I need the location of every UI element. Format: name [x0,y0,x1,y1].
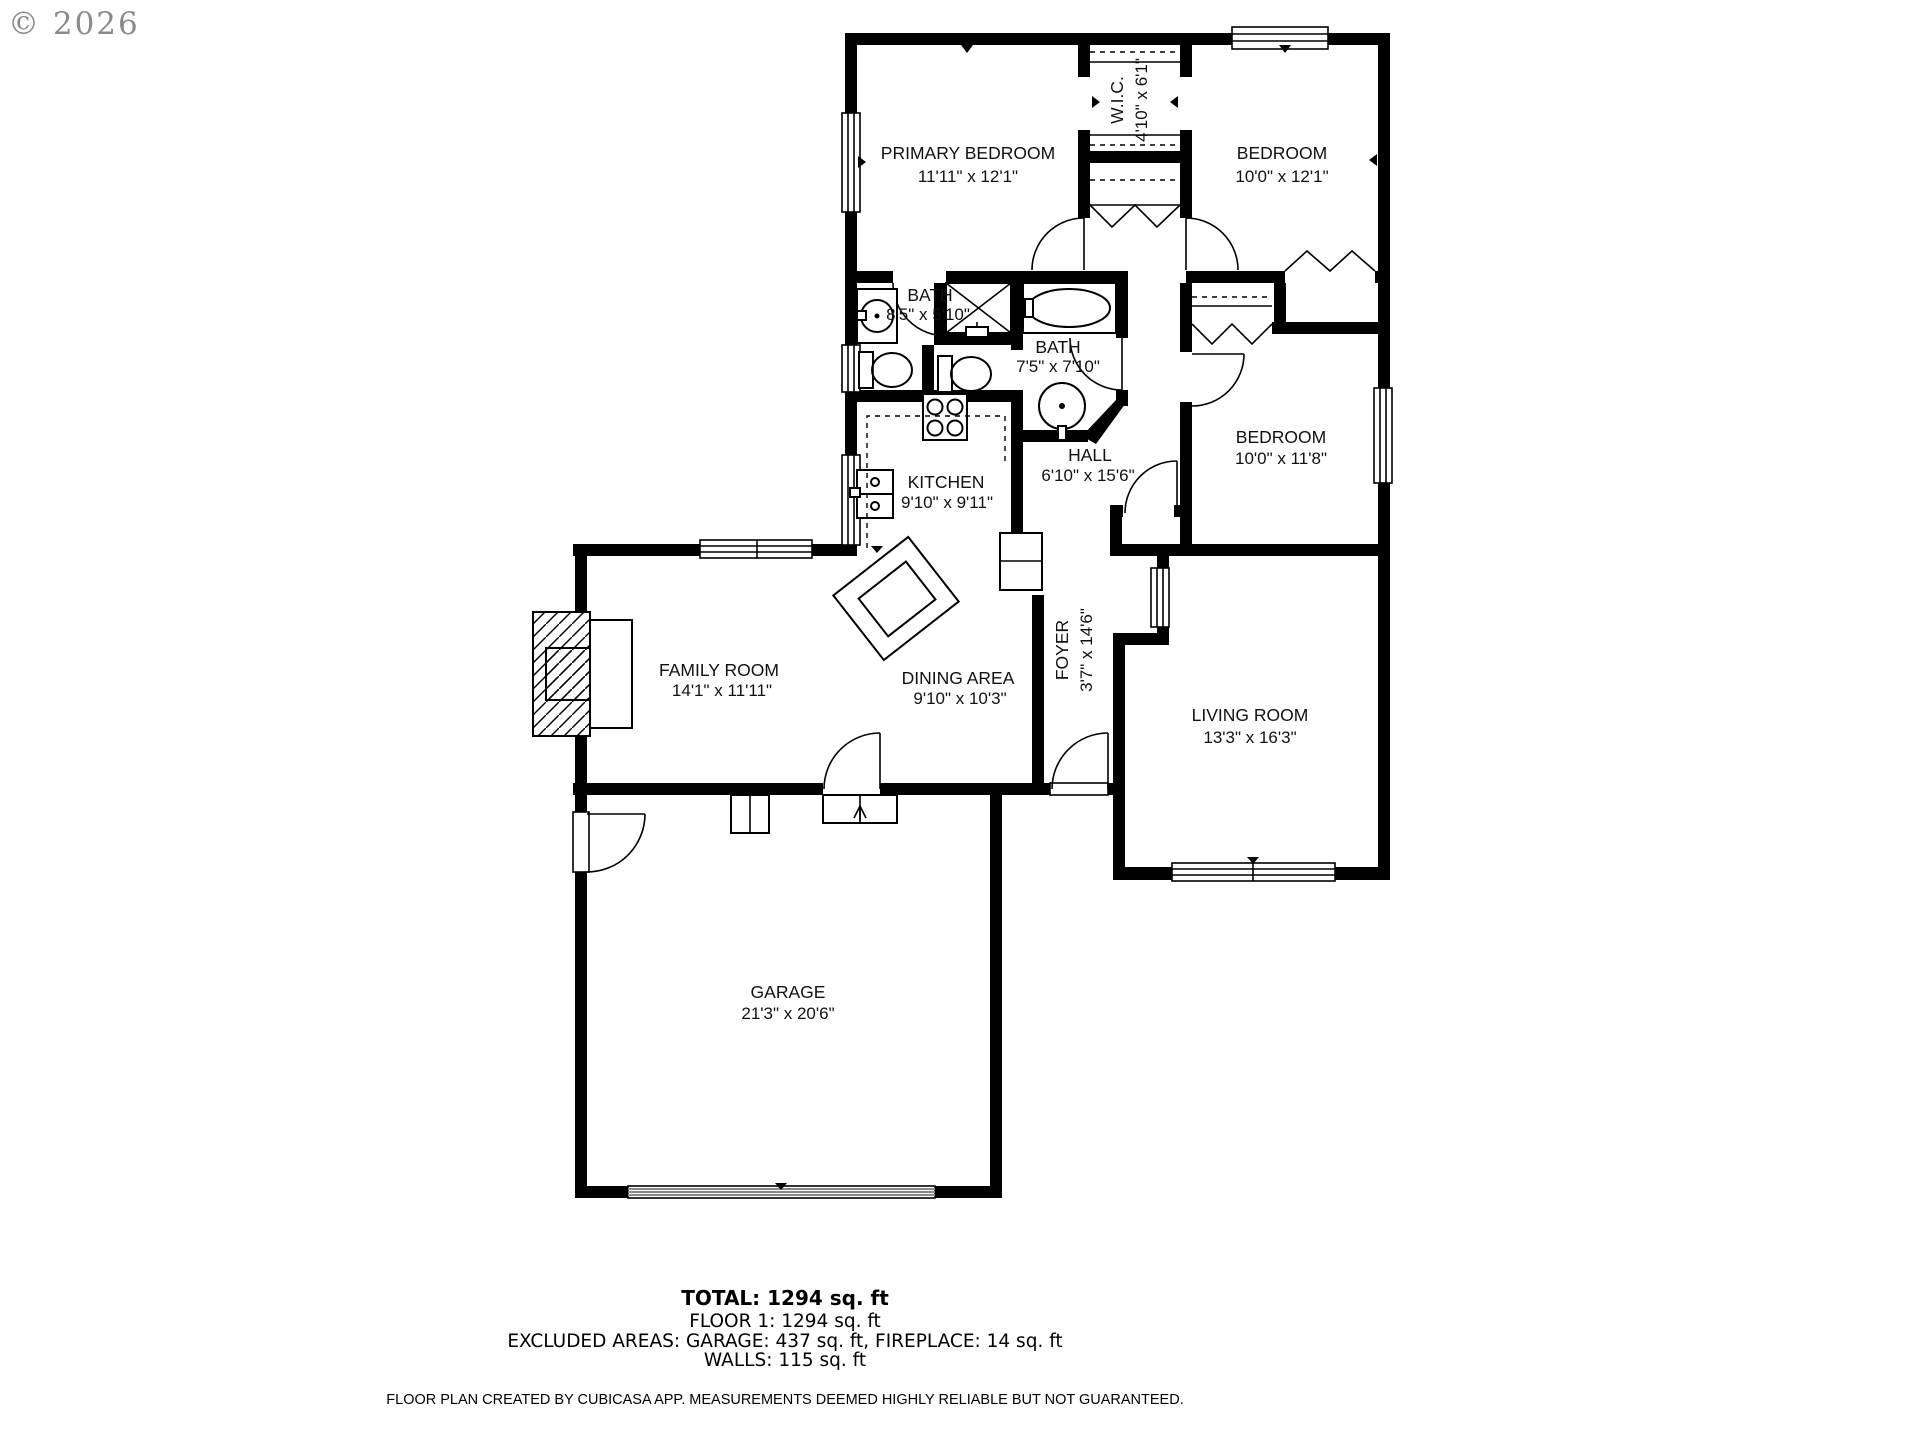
walls [573,33,1390,1198]
room-dims-foyer: 3'7" x 14'6" [1077,608,1096,692]
room-dims-bedroom1: 10'0" x 12'1" [1235,167,1328,186]
room-dims-living-room: 13'3" x 16'3" [1203,728,1296,747]
room-label-garage: GARAGE [751,982,826,1002]
summary-floor1: FLOOR 1: 1294 sq. ft [689,1311,881,1332]
room-label-foyer: FOYER [1052,620,1072,680]
kitchen-sink [850,470,893,518]
room-label-dining-area: DINING AREA [902,668,1015,688]
room-dims-garage: 21'3" x 20'6" [741,1004,834,1023]
window [1151,568,1169,627]
interior-door-primary-bedroom [1032,218,1084,270]
bath2-toilet [938,356,991,392]
bedroom2-closet [1192,297,1272,344]
room-dims-dining-area: 9'10" x 10'3" [913,689,1006,708]
room-label-bedroom1: BEDROOM [1237,143,1327,163]
water-heater [731,795,769,833]
room-label-bedroom2: BEDROOM [1236,427,1326,447]
floor-plan-page: { "watermark": "© 2026", "rooms": { "pri… [0,0,1920,1440]
window [842,113,860,212]
front-door [1050,733,1108,795]
room-dims-primary-bedroom: 11'11" x 12'1" [918,167,1018,186]
fixtures [533,283,1116,1198]
linen-closet-bifold-doors [1090,180,1180,227]
room-label-wic: W.I.C. [1107,76,1127,124]
interior-door-bedroom2 [1192,354,1244,406]
stove [923,394,967,440]
room-dims-bath2: 7'5" x 7'10" [1016,357,1100,376]
room-label-bath1: BATH [907,285,952,305]
bedroom1-closet-bifold-doors [1285,251,1375,271]
room-dims-bedroom2: 10'0" x 11'8" [1235,449,1327,468]
window [700,540,812,558]
bath1-toilet [859,352,912,388]
garage-side-door [573,812,645,872]
interior-door-bedroom1 [1186,218,1238,270]
copyright-watermark: © 2026 [8,6,140,42]
window [1374,388,1392,483]
room-dims-hall: 6'10" x 15'6" [1041,466,1134,485]
room-label-hall: HALL [1068,445,1112,465]
room-dims-bath1: 8'5" x 5'10" [886,305,970,324]
bathtub [1023,283,1116,333]
room-label-family-room: FAMILY ROOM [659,660,779,680]
summary-walls: WALLS: 115 sq. ft [704,1350,866,1371]
room-dims-family-room: 14'1" x 11'11" [672,681,772,700]
room-label-living-room: LIVING ROOM [1192,705,1309,725]
room-label-primary-bedroom: PRIMARY BEDROOM [881,143,1055,163]
room-label-kitchen: KITCHEN [908,472,985,492]
disclaimer-text: FLOOR PLAN CREATED BY CUBICASA APP. MEAS… [386,1392,1183,1408]
floor-plan: © 2026 [0,0,1920,1440]
window [842,345,860,392]
interior-door-garage [824,733,880,789]
entry-step [823,795,897,823]
room-label-bath2: BATH [1035,337,1080,357]
window [1172,863,1335,881]
summary-excluded-areas: EXCLUDED AREAS: GARAGE: 437 sq. ft, FIRE… [507,1331,1062,1352]
summary-footer: TOTAL: 1294 sq. ft FLOOR 1: 1294 sq. ft … [386,1286,1183,1408]
room-dims-wic: 4'10" x 6'1" [1132,58,1151,142]
foyer-cabinet [1000,533,1042,590]
fireplace [533,612,632,736]
summary-total: TOTAL: 1294 sq. ft [681,1286,889,1310]
room-dims-kitchen: 9'10" x 9'11" [901,493,993,512]
